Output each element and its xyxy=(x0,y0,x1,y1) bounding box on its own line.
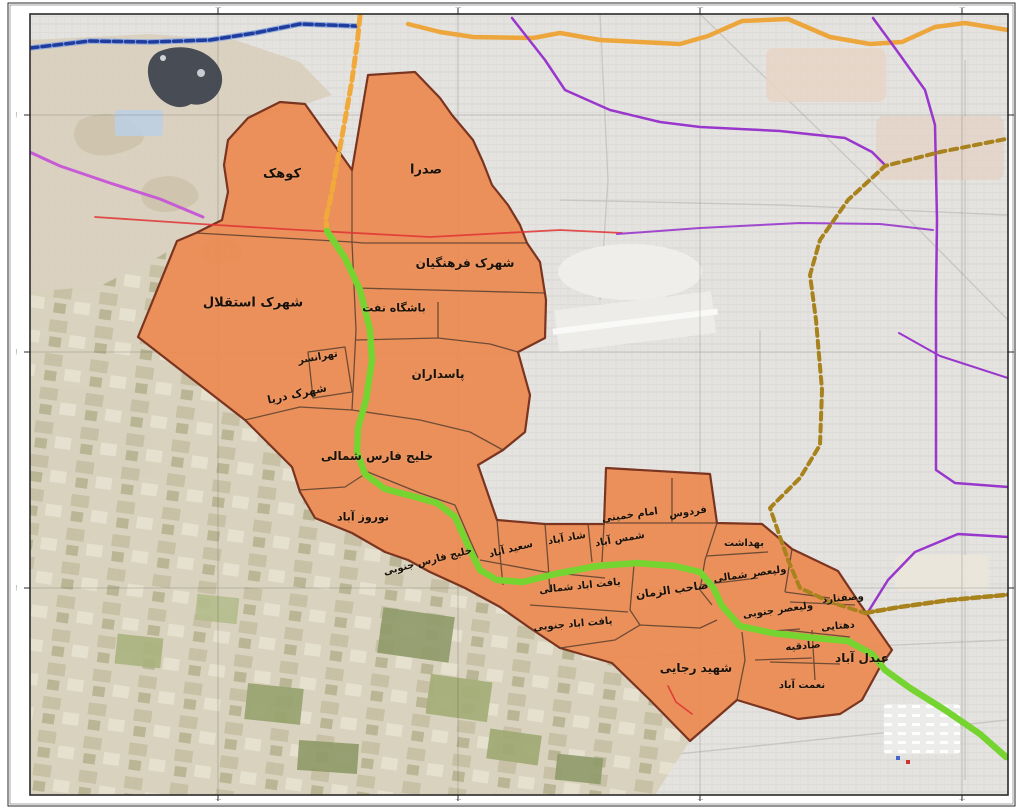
satellite-map-image xyxy=(0,0,1024,810)
light-patch xyxy=(895,555,989,591)
light-urban-patch xyxy=(558,244,702,300)
poi-dot xyxy=(906,760,910,764)
lake-island xyxy=(160,55,166,61)
poi-dot xyxy=(896,756,900,760)
map-document-page: کوهکصدراشهرک فرهنگیانشهرک استقلالباشگاه … xyxy=(0,0,1024,810)
pink-patch xyxy=(876,116,1004,180)
pink-patch xyxy=(766,48,886,102)
lake-island xyxy=(197,69,205,77)
blue-roofs-patch xyxy=(115,110,163,136)
